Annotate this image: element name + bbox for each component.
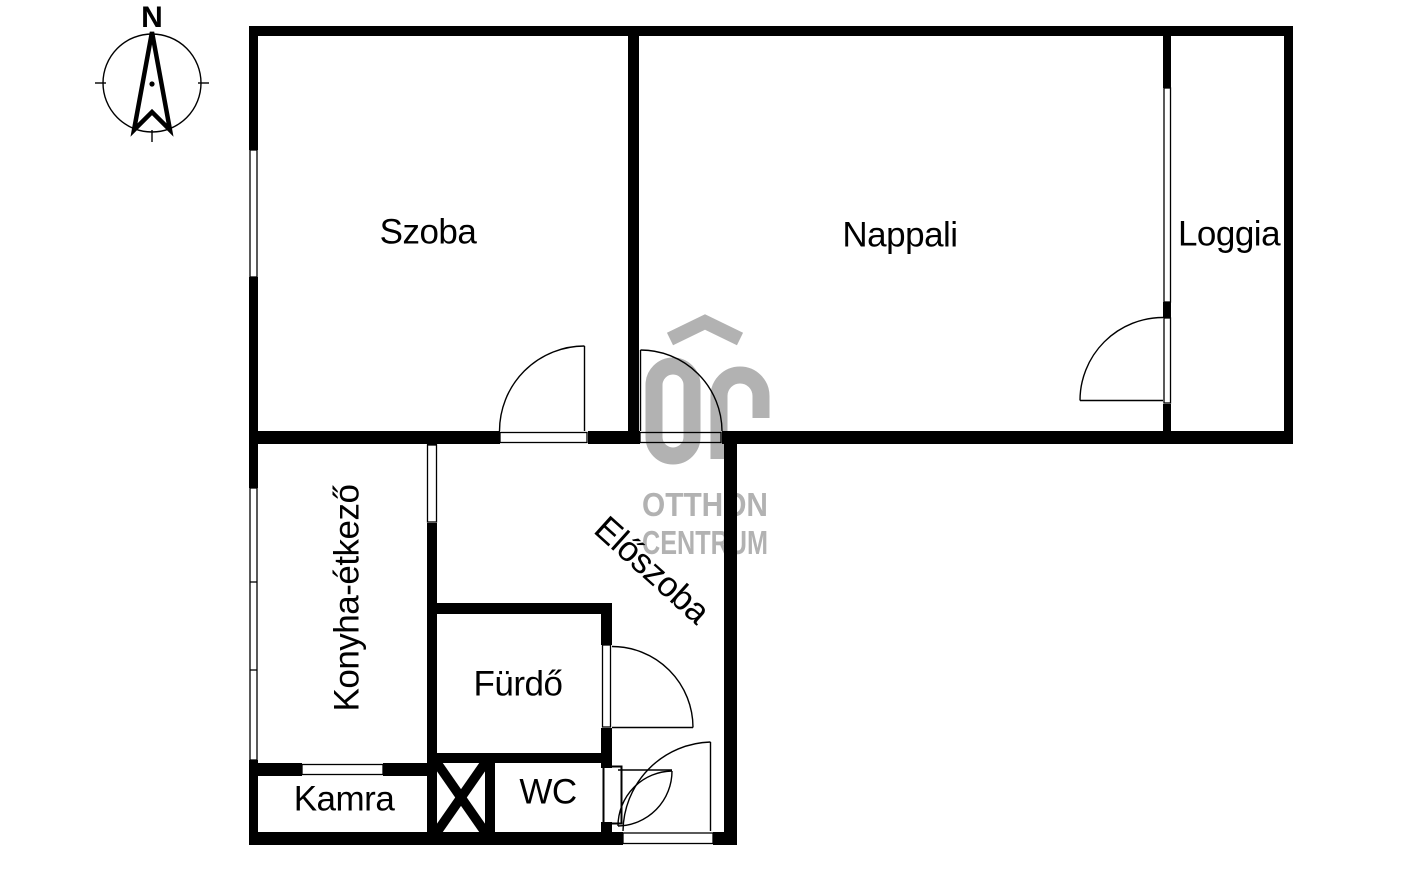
wall-bottom-upper-3 [722, 431, 1293, 444]
wall-bottom-lower-1 [249, 832, 623, 845]
szoba-door-threshold [500, 433, 587, 443]
shaft-cross-icon [437, 763, 485, 832]
wall-kamra-top-1 [249, 763, 302, 776]
wall-top [249, 26, 1293, 36]
compass-north-label: N [141, 3, 163, 33]
windows [250, 88, 1171, 760]
room-label-kamra: Kamra [294, 782, 395, 817]
wall-szoba-nappali [628, 26, 639, 444]
wall-furdo-top [427, 603, 612, 614]
szoba-door-arc [500, 346, 585, 431]
wall-bottom-upper-1 [249, 431, 500, 444]
furdo-door-threshold [603, 645, 611, 727]
wall-bottom-lower-2 [713, 832, 737, 845]
compass [95, 32, 209, 142]
wall-konyha-eloszoba-stub [427, 431, 437, 445]
entrance-door-arc [623, 742, 711, 831]
wall-furdo-right-upper [601, 614, 612, 645]
wall-wc-top [427, 753, 612, 763]
wall-furdo-right-lower [601, 728, 612, 753]
north-arrow-icon [134, 32, 170, 130]
wall-kamra-top-2 [383, 763, 437, 776]
house-roof-icon [670, 322, 740, 339]
loggia-door-threshold [1164, 318, 1171, 403]
wall-nappali-loggia-bottom [1163, 404, 1171, 444]
room-label-loggia: Loggia [1178, 217, 1280, 252]
room-label-furdo: Fürdő [474, 667, 563, 702]
szoba-window [250, 150, 257, 277]
walls [249, 26, 1293, 845]
floor-plan-drawing: OTTHON CENTRUM [0, 0, 1408, 869]
furdo-door-arc [612, 647, 693, 728]
wall-nappali-loggia-mid [1163, 302, 1171, 318]
kamra-passage-opening [302, 765, 383, 775]
wall-eloszoba-right [724, 431, 737, 845]
watermark-line1: OTTHON [642, 486, 768, 523]
wall-left-middle [249, 277, 258, 488]
konyha-window [250, 488, 257, 760]
loggia-door-arc [1080, 318, 1163, 401]
wall-konyha-eloszoba [427, 523, 437, 833]
loggia-window [1164, 88, 1171, 302]
room-label-szoba: Szoba [380, 215, 477, 250]
room-label-wc: WC [519, 775, 576, 810]
wall-right-outer [1284, 26, 1293, 444]
entrance-door-threshold [623, 833, 713, 844]
compass-center-dot [149, 81, 154, 86]
konyha-passage-opening [428, 445, 437, 522]
room-label-konyha-etkezo: Konyha-étkező [330, 485, 365, 712]
room-label-nappali: Nappali [842, 218, 957, 253]
wall-left-upper [249, 26, 258, 150]
wall-nappali-loggia-top [1163, 26, 1171, 88]
floor-plan-canvas: OTTHON CENTRUM [0, 0, 1408, 869]
